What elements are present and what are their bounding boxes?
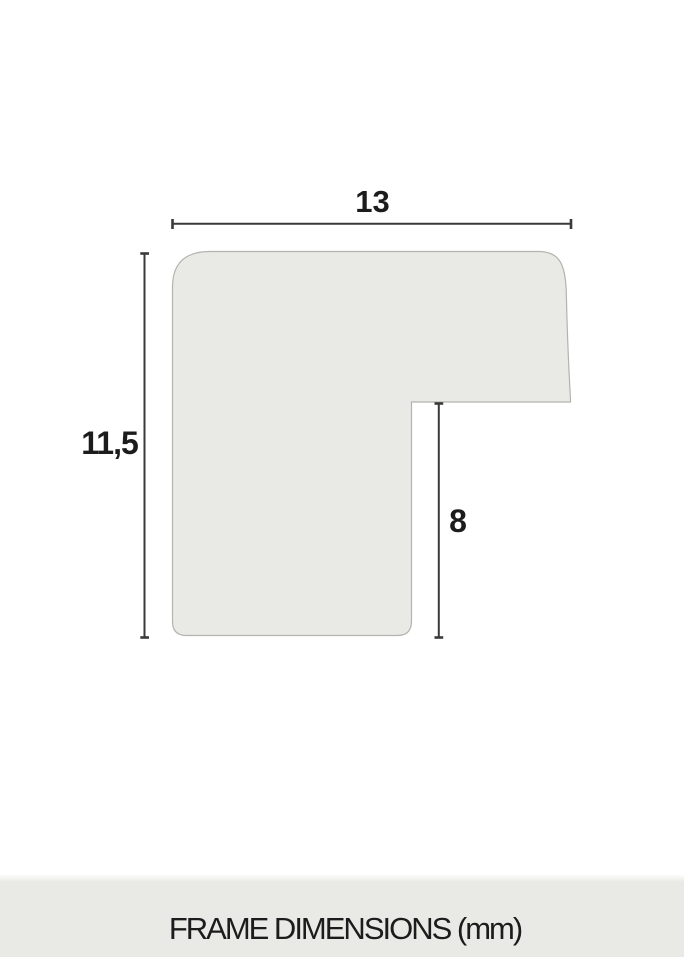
svg-text:8: 8: [449, 503, 467, 539]
svg-text:11,5: 11,5: [81, 425, 138, 461]
svg-text:13: 13: [355, 184, 389, 219]
